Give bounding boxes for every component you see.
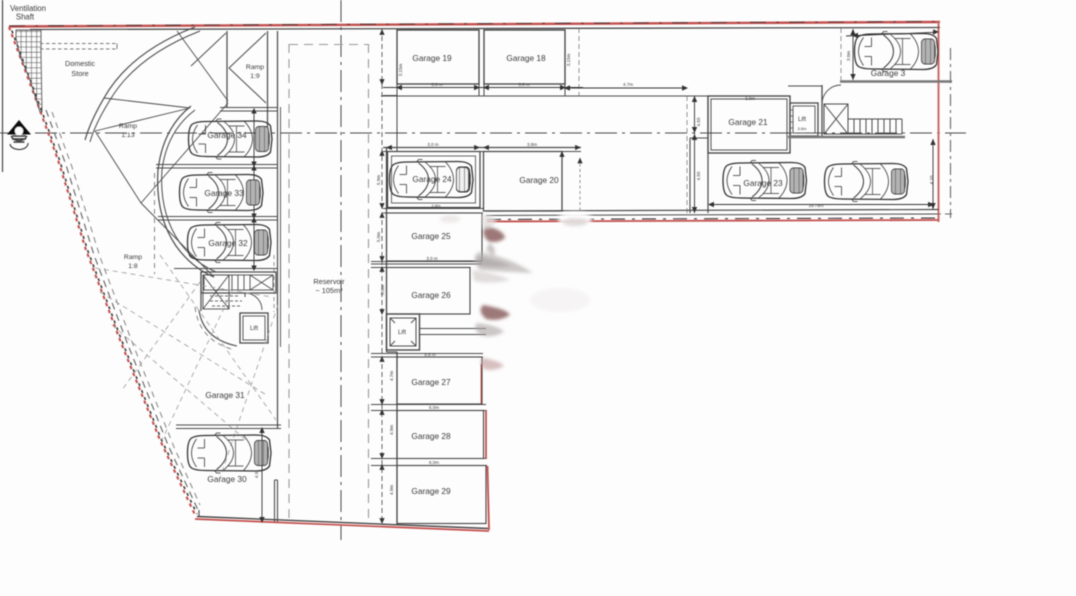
svg-text:6.0m: 6.0m xyxy=(429,405,439,410)
svg-text:Garage 3: Garage 3 xyxy=(871,68,906,78)
svg-text:5.9m: 5.9m xyxy=(376,175,381,185)
svg-text:3.0 m: 3.0 m xyxy=(427,142,439,147)
svg-text:Garage 34: Garage 34 xyxy=(207,130,247,140)
svg-text:Garage 23: Garage 23 xyxy=(743,178,783,188)
svg-text:Ramp: Ramp xyxy=(124,254,142,261)
svg-text:Reservoir: Reservoir xyxy=(313,277,345,286)
svg-text:3.9m: 3.9m xyxy=(745,96,755,101)
svg-text:3.15m: 3.15m xyxy=(398,63,403,76)
svg-text:Garage 21: Garage 21 xyxy=(728,117,768,127)
svg-text:1:8: 1:8 xyxy=(128,263,138,270)
svg-text:1:13: 1:13 xyxy=(121,132,134,139)
svg-text:4.7m: 4.7m xyxy=(623,82,633,87)
svg-text:Garage 25: Garage 25 xyxy=(411,231,451,241)
svg-text:5.8 m: 5.8 m xyxy=(424,352,436,357)
svg-text:Lift: Lift xyxy=(798,117,806,123)
svg-text:Garage 26: Garage 26 xyxy=(411,290,451,300)
svg-text:3.0 m: 3.0 m xyxy=(518,82,530,87)
svg-text:6.0m: 6.0m xyxy=(429,460,439,465)
svg-text:Garage 32: Garage 32 xyxy=(208,238,248,248)
svg-text:Ramp: Ramp xyxy=(119,123,137,130)
svg-text:Store: Store xyxy=(71,69,88,78)
svg-text:4.9: 4.9 xyxy=(254,471,259,478)
svg-text:5.0m: 5.0m xyxy=(380,285,385,295)
svg-text:Garage 29: Garage 29 xyxy=(411,486,451,496)
svg-text:Garage 18: Garage 18 xyxy=(506,53,546,63)
svg-text:Garage 19: Garage 19 xyxy=(412,53,452,63)
svg-text:3.8m: 3.8m xyxy=(798,126,808,131)
svg-text:~ 105m³: ~ 105m³ xyxy=(316,286,344,295)
svg-text:1:9: 1:9 xyxy=(250,73,260,80)
svg-text:4.50: 4.50 xyxy=(696,171,701,180)
svg-text:3.0 m: 3.0 m xyxy=(431,82,443,87)
svg-text:4.50: 4.50 xyxy=(696,117,701,126)
svg-text:2.8m: 2.8m xyxy=(432,203,442,208)
svg-text:Garage 30: Garage 30 xyxy=(207,474,247,484)
svg-text:3.0m: 3.0m xyxy=(846,51,851,61)
svg-text:4.9m: 4.9m xyxy=(389,425,394,435)
svg-text:Lift: Lift xyxy=(398,330,406,336)
svg-text:Ramp: Ramp xyxy=(246,64,264,71)
svg-text:3.8m: 3.8m xyxy=(527,142,537,147)
svg-text:Garage 28: Garage 28 xyxy=(411,431,451,441)
svg-text:4.7m: 4.7m xyxy=(389,371,394,381)
svg-text:Garage 33: Garage 33 xyxy=(204,188,244,198)
svg-text:3.15m: 3.15m xyxy=(566,53,571,66)
svg-text:Lift: Lift xyxy=(250,326,258,332)
svg-text:3.0 m: 3.0 m xyxy=(426,256,438,261)
svg-text:Garage 24: Garage 24 xyxy=(412,174,452,184)
svg-text:18.75m: 18.75m xyxy=(808,203,823,208)
svg-text:Shaft: Shaft xyxy=(16,13,35,22)
svg-text:Garage 20: Garage 20 xyxy=(519,175,559,185)
svg-text:4.10: 4.10 xyxy=(929,175,934,184)
svg-text:Garage 31: Garage 31 xyxy=(205,390,245,400)
svg-text:4.9m: 4.9m xyxy=(389,485,394,495)
svg-text:Garage 27: Garage 27 xyxy=(411,377,451,387)
svg-text:5.0m: 5.0m xyxy=(376,232,381,242)
svg-text:Domestic: Domestic xyxy=(65,59,95,68)
